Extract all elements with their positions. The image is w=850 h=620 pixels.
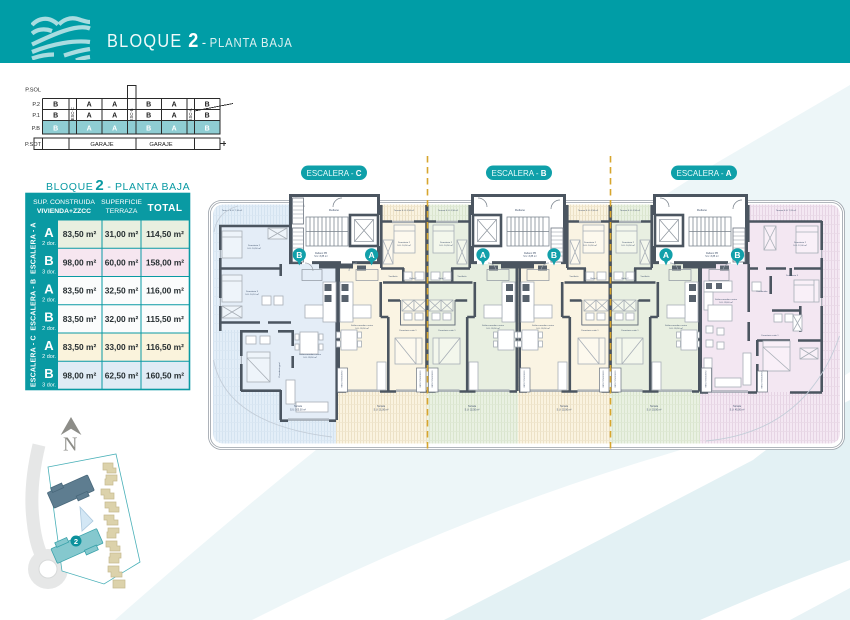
svg-text:32,00 m²: 32,00 m² [105,314,139,324]
svg-text:S.U: 28,40 m²: S.U: 28,40 m² [719,301,733,304]
svg-text:ESC-C: ESC-C [70,107,75,120]
svg-text:S.U: 8,85 m²: S.U: 8,85 m² [705,255,719,258]
svg-text:B: B [734,250,740,260]
svg-text:2 dor.: 2 dor. [42,354,56,360]
svg-text:Dormitorio suite 1: Dormitorio suite 1 [761,334,779,337]
svg-text:160,50 m²: 160,50 m² [146,370,184,380]
svg-text:Salón-comedor-cocina: Salón-comedor-cocina [532,324,555,327]
svg-text:Vestíbulo: Vestíbulo [570,275,580,278]
svg-text:S.U: 26,50 m²: S.U: 26,50 m² [536,327,550,330]
svg-text:62,50 m²: 62,50 m² [105,370,139,380]
svg-text:Vestíbulo: Vestíbulo [389,275,399,278]
svg-text:Dormitorio 2: Dormitorio 2 [440,241,453,244]
svg-text:PATIO TENDEDERO: PATIO TENDEDERO [705,370,708,387]
svg-text:A: A [44,225,54,240]
svg-text:Dormitorio ppal: Dormitorio ppal [278,362,281,377]
svg-text:3 dor.: 3 dor. [42,383,56,389]
svg-text:VIVIENDA+ZZCC: VIVIENDA+ZZCC [37,208,91,215]
svg-text:S.U: 26,50 m²: S.U: 26,50 m² [486,327,500,330]
svg-text:S.U: 12,00 m²: S.U: 12,00 m² [793,244,807,247]
svg-text:83,50 m²: 83,50 m² [63,342,97,352]
svg-text:Salón-comedor-cocina: Salón-comedor-cocina [299,353,322,356]
svg-text:116,00 m²: 116,00 m² [146,286,184,296]
svg-text:83,50 m²: 83,50 m² [63,314,97,324]
svg-text:32,50 m²: 32,50 m² [105,286,139,296]
svg-text:Dormitorio 2: Dormitorio 2 [794,241,807,244]
svg-text:S.U: 33,00 m²: S.U: 33,00 m² [647,409,662,412]
svg-text:B: B [205,102,210,109]
svg-text:115,50 m²: 115,50 m² [146,314,184,324]
svg-text:Baño 2: Baño 2 [410,277,418,280]
svg-text:BLOQUE2- PLANTA BAJA: BLOQUE2- PLANTA BAJA [46,177,190,194]
svg-text:SUPERFICIE: SUPERFICIE [101,199,142,206]
svg-text:S.U: 26,50 m²: S.U: 26,50 m² [669,327,683,330]
svg-text:Vestíbulo: Vestíbulo [458,275,468,278]
svg-text:S.U: 10,50 m²: S.U: 10,50 m² [397,244,411,247]
svg-text:P.2: P.2 [32,102,40,108]
svg-text:S.U: 10,50 m²: S.U: 10,50 m² [583,244,597,247]
svg-text:P.SOL: P.SOL [25,88,41,94]
svg-text:SUP. CONSTRUIDA: SUP. CONSTRUIDA [33,199,95,206]
svg-text:GARAJE: GARAJE [90,142,113,148]
svg-text:B: B [44,253,53,268]
svg-text:A: A [87,126,92,133]
svg-text:S.U: 32,50 m²: S.U: 32,50 m² [465,409,480,412]
svg-text:60,00 m²: 60,00 m² [105,257,139,267]
svg-text:S.U: 28,50 m²: S.U: 28,50 m² [303,356,317,359]
svg-text:Salón-comedor-cocina: Salón-comedor-cocina [482,324,505,327]
svg-text:B: B [146,113,151,120]
svg-text:PATIO TENDEDERO: PATIO TENDEDERO [431,370,434,387]
svg-text:Dormitorio suite 1: Dormitorio suite 1 [621,329,639,332]
svg-text:33,00 m²: 33,00 m² [105,342,139,352]
svg-text:2 dor.: 2 dor. [42,298,56,304]
svg-text:Terraza S.U: 7,20 m²: Terraza S.U: 7,20 m² [776,209,796,212]
svg-text:B: B [53,102,58,109]
svg-text:B: B [205,113,210,120]
svg-text:A: A [480,250,486,260]
svg-text:A: A [112,102,117,109]
svg-text:2 dor.: 2 dor. [42,326,56,332]
svg-text:Terraza S.U: 4,50 m²: Terraza S.U: 4,50 m² [578,209,598,212]
svg-text:Baño 2: Baño 2 [622,277,630,280]
svg-text:Rellano: Rellano [697,208,708,212]
svg-text:B: B [551,250,557,260]
svg-text:A: A [87,113,92,120]
svg-text:ESC-B: ESC-B [129,108,134,121]
svg-text:83,50 m²: 83,50 m² [63,286,97,296]
svg-text:3 dor.: 3 dor. [42,270,56,276]
svg-text:Terraza S.U: 4,50 m²: Terraza S.U: 4,50 m² [620,209,640,212]
svg-text:S.U: 10,50 m²: S.U: 10,50 m² [439,244,453,247]
svg-text:A: A [44,282,54,297]
svg-text:Baño 2: Baño 2 [439,277,447,280]
svg-text:ESCALERA - C: ESCALERA - C [31,335,38,387]
svg-text:ESCALERA - A: ESCALERA - A [31,222,38,274]
svg-text:S.U: 32,00 m²: S.U: 32,00 m² [557,409,572,412]
svg-text:Terraza S.U: 4,50 m²: Terraza S.U: 4,50 m² [438,209,458,212]
svg-text:Rellano: Rellano [515,208,526,212]
svg-text:B: B [296,250,302,260]
svg-text:A: A [44,338,54,353]
svg-text:S.U: 31,00 m²: S.U: 31,00 m² [374,409,389,412]
svg-text:98,00 m²: 98,00 m² [63,370,97,380]
svg-text:A: A [112,126,117,133]
svg-text:S.U: 10,50 m²: S.U: 10,50 m² [247,247,261,250]
svg-text:A: A [172,126,177,133]
svg-text:Terraza S.U: 4,50 m²: Terraza S.U: 4,50 m² [394,209,414,212]
svg-text:PATIO TENDEDERO: PATIO TENDEDERO [614,370,617,387]
svg-text:S.U: 10,50 m²: S.U: 10,50 m² [621,244,635,247]
svg-text:A: A [663,250,669,260]
svg-text:P.1: P.1 [32,113,40,119]
svg-text:Dormitorio 2: Dormitorio 2 [584,241,597,244]
svg-text:114,50 m²: 114,50 m² [146,229,184,239]
svg-text:Terraza S.U: 7,10 m²: Terraza S.U: 7,10 m² [222,209,242,212]
svg-text:ESCALERA - B: ESCALERA - B [492,168,547,178]
svg-text:B: B [146,102,151,109]
svg-text:A: A [112,113,117,120]
svg-text:S.U: 10,10 m²: S.U: 10,10 m² [245,293,259,296]
svg-text:A: A [369,250,375,260]
svg-text:B: B [44,310,53,325]
svg-text:31,00 m²: 31,00 m² [105,229,139,239]
svg-text:ESCALERA - C: ESCALERA - C [307,168,362,178]
svg-text:S.U: 8,85 m²: S.U: 8,85 m² [314,255,328,258]
svg-text:98,00 m²: 98,00 m² [63,257,97,267]
svg-text:Dormitorio 3: Dormitorio 3 [246,290,259,293]
svg-text:2 dor.: 2 dor. [42,241,56,247]
svg-text:Dormitorio 2: Dormitorio 2 [622,241,635,244]
svg-text:Salón-comedor-cocina: Salón-comedor-cocina [351,324,374,327]
svg-text:PATIO TENDEDERO: PATIO TENDEDERO [419,370,422,387]
svg-text:Dormitorio 2: Dormitorio 2 [248,244,261,247]
svg-text:PATIO TENDEDERO: PATIO TENDEDERO [341,370,344,387]
svg-text:Rellano: Rellano [329,208,340,212]
svg-text:B: B [53,113,58,120]
svg-text:B: B [53,126,58,133]
svg-text:S.U: 26,50 m²: S.U: 26,50 m² [355,327,369,330]
svg-text:B: B [205,126,210,133]
svg-text:A: A [172,113,177,120]
svg-text:P.SOT: P.SOT [25,142,42,148]
svg-text:Vestíbulo: Vestíbulo [641,275,651,278]
svg-text:Dormitorio suite 1: Dormitorio suite 1 [438,329,456,332]
svg-text:B: B [146,126,151,133]
svg-text:TOTAL: TOTAL [148,203,183,214]
svg-text:ESCALERA - B: ESCALERA - B [31,279,38,331]
svg-text:83,50 m²: 83,50 m² [63,229,97,239]
svg-text:Salón-comedor-cocina: Salón-comedor-cocina [665,324,688,327]
svg-text:Dormitorio suite 1: Dormitorio suite 1 [581,329,599,332]
svg-text:PATIO TENDEDERO: PATIO TENDEDERO [602,370,605,387]
svg-text:B: B [44,366,53,381]
svg-text:Baño 2: Baño 2 [591,277,599,280]
svg-text:S.U: 45,00 m²: S.U: 45,00 m² [730,409,745,412]
svg-text:A: A [87,102,92,109]
svg-text:TERRAZA: TERRAZA [106,208,138,215]
svg-text:Distribuidor: Distribuidor [756,290,767,293]
svg-text:Dormitorio suite 1: Dormitorio suite 1 [399,329,417,332]
svg-text:158,00 m²: 158,00 m² [146,257,184,267]
svg-text:Dormitorio 2: Dormitorio 2 [398,241,411,244]
svg-text:Dormitorio 3: Dormitorio 3 [786,274,799,277]
svg-text:2: 2 [74,537,78,546]
svg-text:PATIO TENDEDERO: PATIO TENDEDERO [523,370,526,387]
svg-text:S.U: 105,00 m²: S.U: 105,00 m² [290,409,306,412]
svg-text:PATIO TENDEDERO: PATIO TENDEDERO [761,371,764,388]
svg-text:Salón-comedor-cocina: Salón-comedor-cocina [715,298,738,301]
svg-text:S.U: 8,85 m²: S.U: 8,85 m² [523,255,537,258]
svg-text:A: A [172,102,177,109]
svg-text:GARAJE: GARAJE [149,142,172,148]
svg-text:ESC-A: ESC-A [188,108,193,121]
svg-text:N: N [63,434,77,456]
svg-text:116,50 m²: 116,50 m² [146,342,184,352]
svg-text:ESCALERA - A: ESCALERA - A [677,168,732,178]
svg-text:P.B: P.B [32,126,41,132]
